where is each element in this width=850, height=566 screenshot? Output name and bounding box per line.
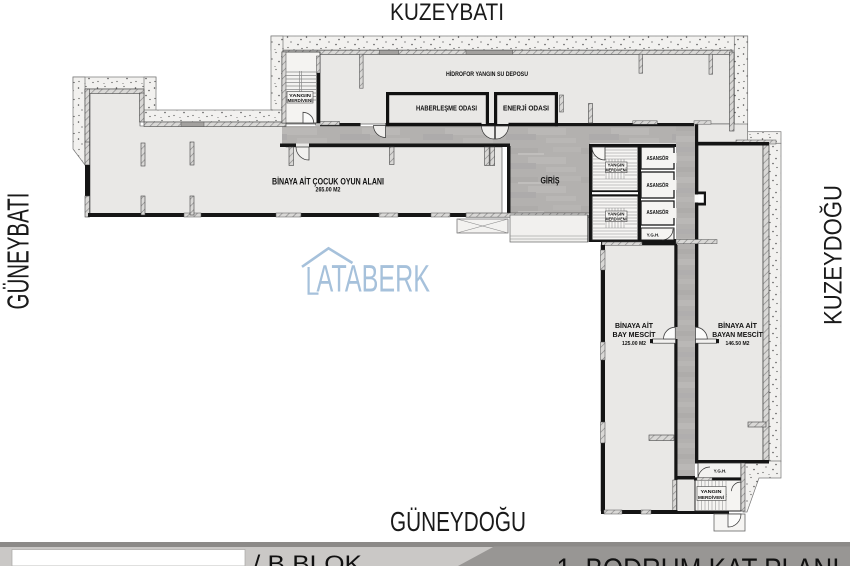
- svg-text:YANGIN: YANGIN: [701, 489, 722, 494]
- svg-text:MERDİVENİ: MERDİVENİ: [288, 97, 313, 103]
- svg-text:ASANSÖR: ASANSÖR: [647, 155, 669, 162]
- svg-text:BİNAYA AİT: BİNAYA AİT: [718, 321, 757, 330]
- svg-text:BAYAN MESCİT: BAYAN MESCİT: [712, 330, 763, 339]
- svg-text:Y.G.H.: Y.G.H.: [647, 233, 660, 238]
- svg-text:HİDROFOR YANGIN SU DEPOSU: HİDROFOR YANGIN SU DEPOSU: [446, 70, 528, 78]
- svg-text:ATABERK: ATABERK: [317, 259, 431, 301]
- svg-text:KUZEYDOĞU: KUZEYDOĞU: [819, 185, 848, 325]
- svg-text:MERDİVENİ: MERDİVENİ: [698, 495, 724, 500]
- svg-text:125.00 M2: 125.00 M2: [622, 341, 646, 347]
- svg-text:BİNAYA AİT ÇOCUK OYUN ALANI: BİNAYA AİT ÇOCUK OYUN ALANI: [272, 177, 384, 187]
- svg-text:BİNAYA AİT: BİNAYA AİT: [615, 321, 653, 330]
- svg-text:Y.G.H.: Y.G.H.: [714, 468, 727, 473]
- svg-text:KUZEYBATI: KUZEYBATI: [390, 0, 504, 26]
- svg-text:MERDİVENİ: MERDİVENİ: [606, 216, 627, 221]
- svg-text:GÜNEYDOĞU: GÜNEYDOĞU: [390, 506, 526, 537]
- svg-text:265.00 M2: 265.00 M2: [316, 188, 342, 194]
- svg-text:146.50 M2: 146.50 M2: [726, 341, 750, 347]
- svg-text:/ B BLOK: / B BLOK: [253, 551, 363, 566]
- svg-text:MERDİVENİ: MERDİVENİ: [606, 167, 627, 172]
- svg-text:BAY MESCİT: BAY MESCİT: [613, 330, 656, 339]
- svg-text:ASANSÖR: ASANSÖR: [647, 182, 669, 189]
- svg-text:HABERLEŞME ODASI: HABERLEŞME ODASI: [416, 106, 477, 113]
- svg-text:ENERJİ ODASI: ENERJİ ODASI: [503, 105, 549, 113]
- svg-text:GÜNEYBATI: GÜNEYBATI: [1, 193, 36, 310]
- svg-text:ASANSÖR: ASANSÖR: [647, 209, 669, 216]
- svg-text:GİRİŞ: GİRİŞ: [541, 176, 560, 186]
- svg-text:1. BODRUM KAT PLANI: 1. BODRUM KAT PLANI: [557, 553, 840, 566]
